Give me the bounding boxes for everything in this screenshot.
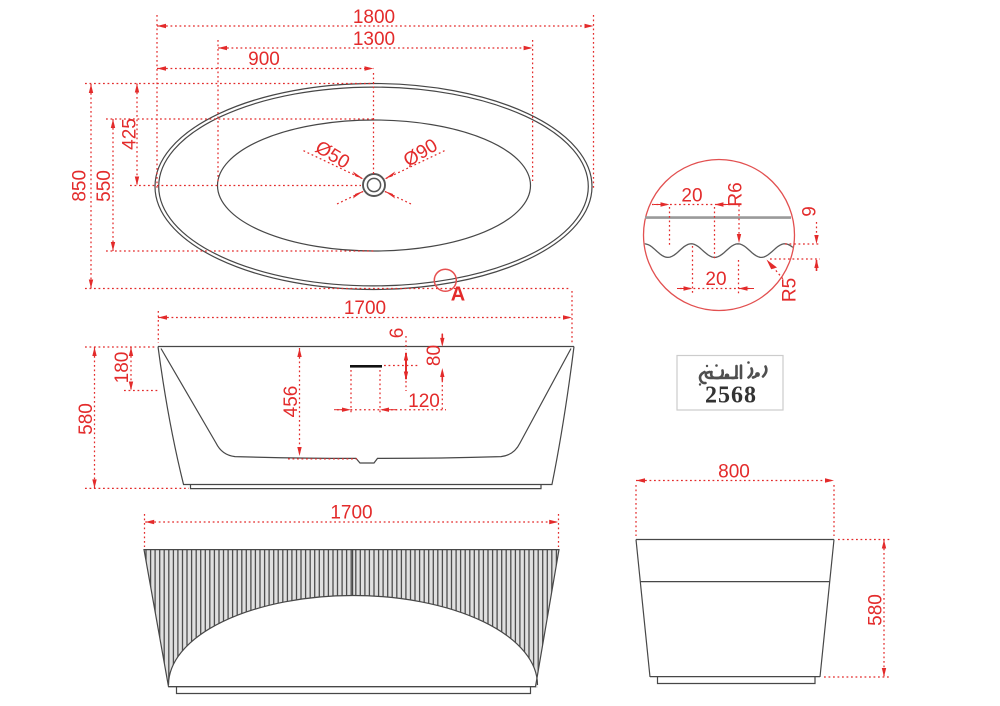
svg-text:2568: 2568 bbox=[705, 383, 757, 409]
svg-text:1800: 1800 bbox=[353, 7, 395, 28]
svg-text:6: 6 bbox=[387, 328, 408, 339]
svg-text:20: 20 bbox=[705, 269, 726, 290]
svg-text:R6: R6 bbox=[726, 182, 747, 206]
svg-text:180: 180 bbox=[112, 352, 133, 384]
svg-text:580: 580 bbox=[866, 594, 887, 626]
svg-text:800: 800 bbox=[718, 462, 750, 483]
svg-text:550: 550 bbox=[94, 170, 115, 202]
svg-text:456: 456 bbox=[281, 386, 302, 418]
svg-text:R5: R5 bbox=[780, 278, 801, 302]
svg-text:850: 850 bbox=[70, 170, 91, 202]
svg-text:1300: 1300 bbox=[353, 29, 395, 50]
svg-text:900: 900 bbox=[248, 49, 280, 70]
svg-text:580: 580 bbox=[76, 403, 97, 435]
svg-text:80: 80 bbox=[424, 345, 445, 366]
svg-text:1700: 1700 bbox=[330, 503, 372, 524]
svg-text:20: 20 bbox=[681, 186, 702, 207]
svg-text:9: 9 bbox=[800, 206, 821, 217]
svg-text:120: 120 bbox=[408, 391, 440, 412]
svg-text:A: A bbox=[451, 284, 465, 306]
svg-text:1700: 1700 bbox=[344, 298, 386, 319]
